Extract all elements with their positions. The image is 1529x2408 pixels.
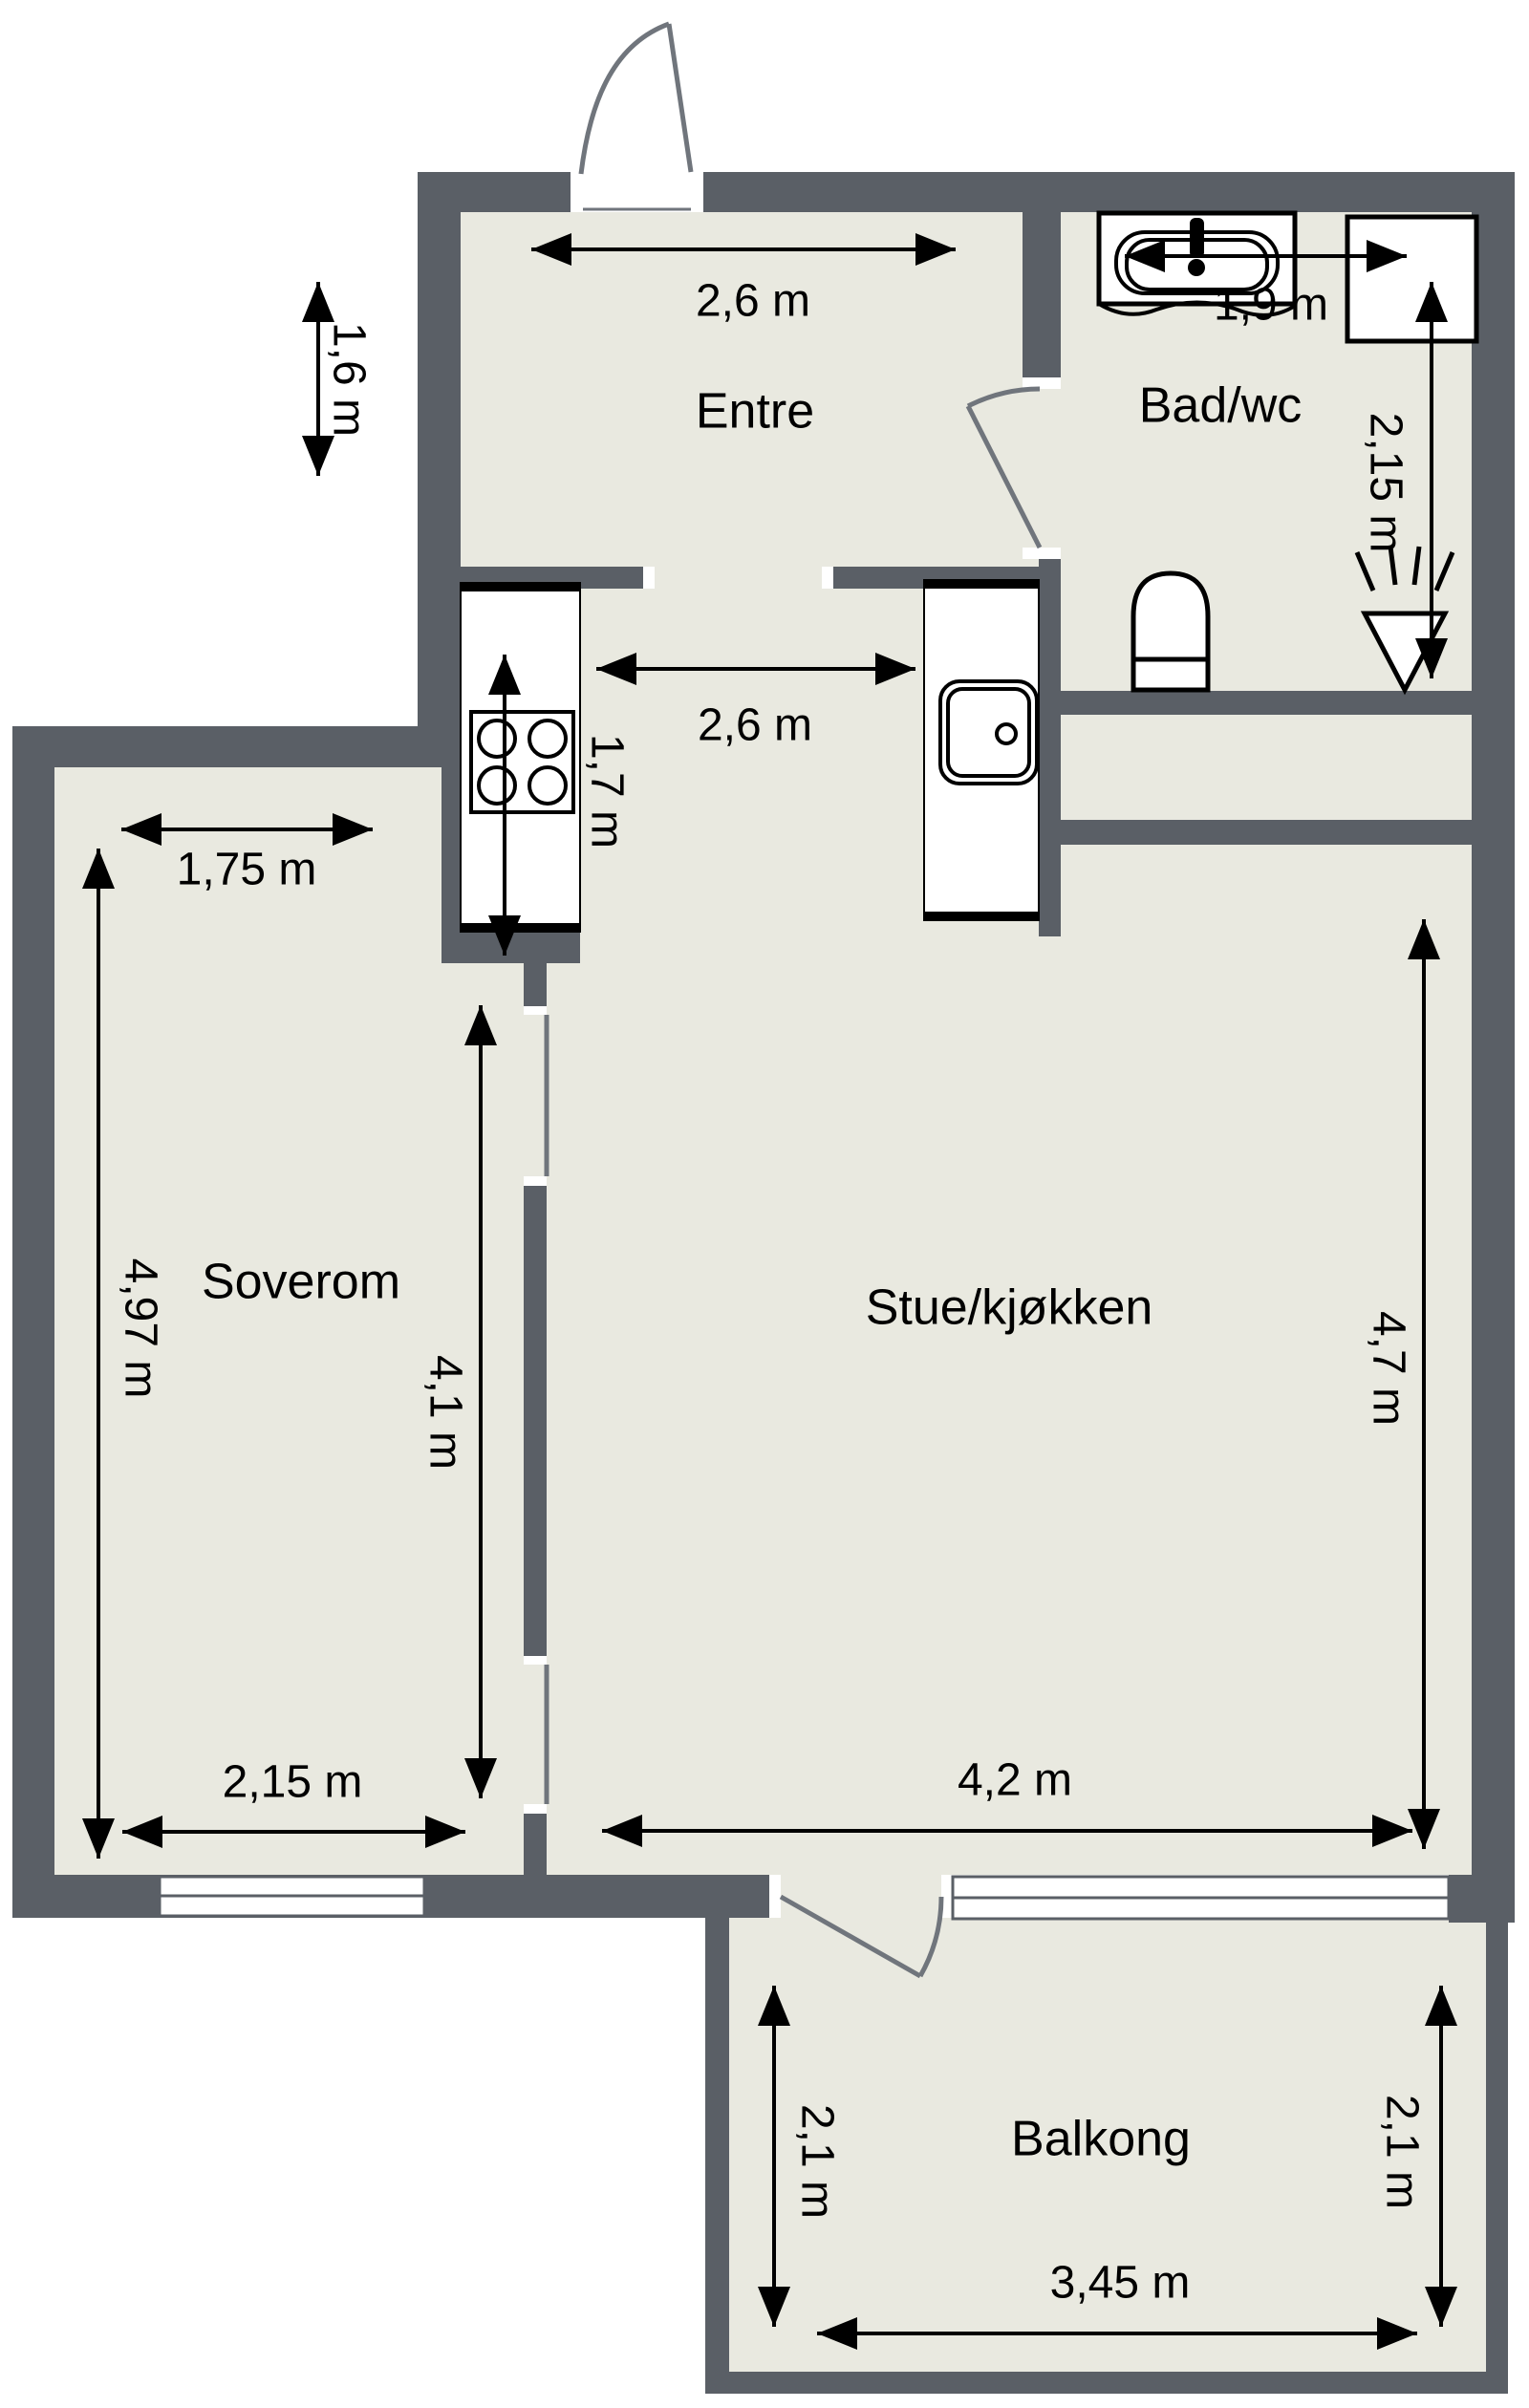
dim-kitchen-counter-label: 1,7 m bbox=[581, 734, 632, 849]
wall-right-outer bbox=[1472, 172, 1515, 1923]
wall-nook-bottom bbox=[441, 928, 580, 963]
wall-entre-left bbox=[418, 172, 461, 767]
dim-balkong-width-label: 3,45 m bbox=[1050, 2258, 1191, 2309]
wall-bad-west bbox=[1039, 559, 1061, 936]
shower-cabinet-icon bbox=[1347, 217, 1476, 341]
floorplan-page: 2,6 m 1,6 m Entre 1,9 m 2,15 m Bad/wc 2,… bbox=[0, 0, 1529, 2408]
soverom-window bbox=[160, 1877, 424, 1916]
wall-shaft-south bbox=[1061, 820, 1472, 845]
dim-soverom-top-label: 1,75 m bbox=[177, 845, 317, 895]
entry-door-jamb-right bbox=[691, 172, 703, 212]
wall-entre-bad-divider bbox=[1023, 212, 1061, 377]
toilet-icon bbox=[1133, 573, 1208, 690]
dim-soverom-left-label: 4,97 m bbox=[115, 1258, 165, 1399]
wall-bottom-stub-right bbox=[1449, 1875, 1486, 1923]
kitchen-opening-jamb-right bbox=[822, 567, 833, 589]
dim-kitchen-width-label: 2,6 m bbox=[698, 700, 812, 751]
entry-door-opening bbox=[583, 172, 691, 212]
wall-nook-left bbox=[441, 767, 461, 932]
dim-entre-height-label: 1,6 m bbox=[323, 322, 374, 437]
entry-door-swing bbox=[581, 24, 691, 174]
dim-soverom-bottom-label: 2,15 m bbox=[223, 1757, 363, 1808]
wall-bad-south bbox=[1061, 691, 1472, 715]
dim-stue-height-label: 4,7 m bbox=[1363, 1311, 1413, 1426]
kitchen-counter-stove bbox=[461, 583, 580, 932]
entry-door-jamb-left bbox=[571, 172, 583, 212]
soverom-door2-jamb-bottom bbox=[524, 1804, 547, 1814]
dim-balkong-left-label: 2,1 m bbox=[791, 2104, 842, 2219]
stue-window bbox=[953, 1877, 1449, 1919]
wall-balkong-bottom bbox=[705, 2372, 1508, 2394]
kitchen-counter-sink bbox=[924, 580, 1039, 920]
dim-entre-width-label: 2,6 m bbox=[696, 276, 810, 327]
room-label-bad: Bad/wc bbox=[1139, 378, 1303, 434]
dim-stue-width-label: 4,2 m bbox=[958, 1755, 1072, 1806]
wall-balkong-left bbox=[705, 1911, 729, 2394]
wall-soverom-divider-stub-top bbox=[524, 963, 547, 1006]
dim-bad-height-label: 2,15 m bbox=[1360, 413, 1411, 553]
soverom-door1-jamb-bottom bbox=[524, 1176, 547, 1186]
soverom-door1-jamb-top bbox=[524, 1006, 547, 1015]
dim-balkong-right-label: 2,1 m bbox=[1376, 2095, 1427, 2209]
balkong-door-jamb-left bbox=[769, 1875, 781, 1918]
wall-soverom-divider-stub-bottom bbox=[524, 1814, 547, 1875]
kitchen-opening bbox=[655, 567, 822, 589]
bad-door-jamb-bottom bbox=[1023, 548, 1061, 559]
floor-main bbox=[461, 212, 1472, 1875]
room-label-balkong: Balkong bbox=[1011, 2112, 1191, 2167]
wall-soverom-divider-mid bbox=[524, 1186, 547, 1656]
dim-soverom-inner-label: 4,1 m bbox=[420, 1355, 470, 1470]
floorplan-canvas: 2,6 m 1,6 m Entre 1,9 m 2,15 m Bad/wc 2,… bbox=[0, 0, 1529, 2408]
wall-soverom-top bbox=[12, 726, 461, 767]
room-label-soverom: Soverom bbox=[202, 1255, 400, 1310]
room-label-entre: Entre bbox=[696, 384, 814, 440]
dim-bad-width-label: 1,9 m bbox=[1214, 280, 1328, 331]
room-label-stue: Stue/kjøkken bbox=[866, 1280, 1153, 1336]
wall-left-outer bbox=[12, 726, 54, 1918]
kitchen-opening-jamb-left bbox=[643, 567, 655, 589]
soverom-door2-jamb-top bbox=[524, 1656, 547, 1665]
wall-balkong-right bbox=[1486, 1923, 1508, 2394]
